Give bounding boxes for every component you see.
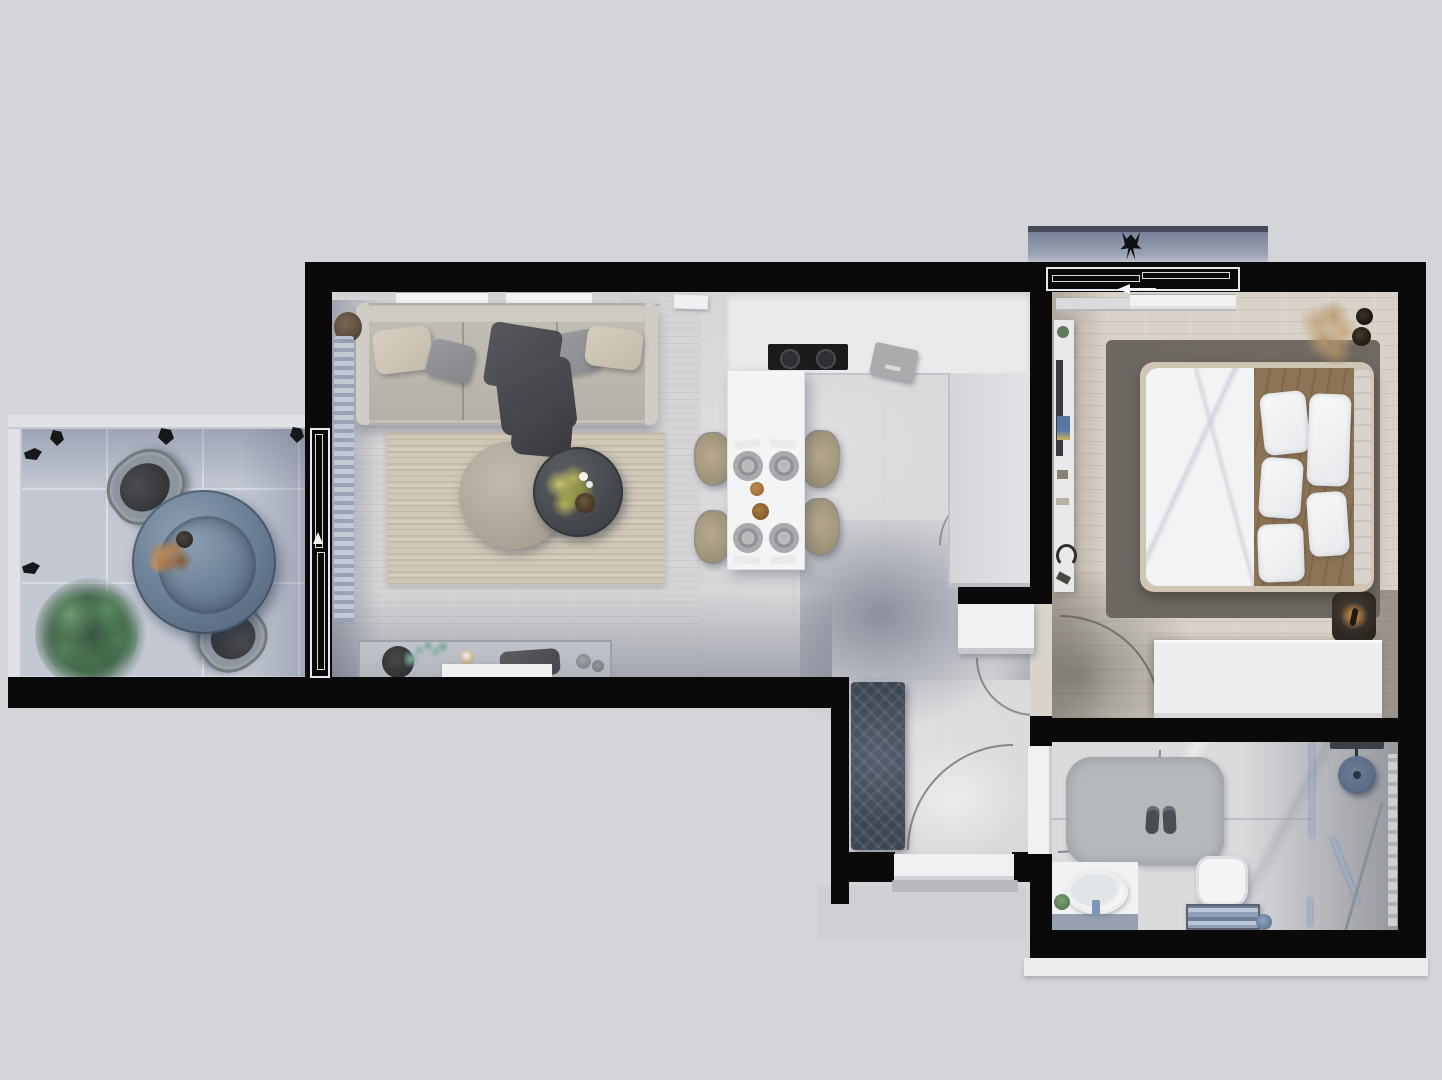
bread-decor: [752, 503, 769, 520]
slide-arrow-tail: [1130, 288, 1156, 290]
console-plant: [1057, 326, 1069, 338]
sofa-pillow: [584, 325, 644, 372]
bedroom-window-sill: [1130, 294, 1236, 311]
toilet: [1196, 856, 1248, 908]
rain-shower-head: [1338, 756, 1376, 794]
cooktop-burner: [780, 349, 800, 369]
bed-pillow: [1257, 523, 1305, 583]
bread-decor: [750, 482, 764, 496]
vanity-plant: [1054, 894, 1070, 910]
kitchen-cabinet-block: [948, 373, 1030, 588]
bedroom-window-sill: [1056, 298, 1132, 311]
wall-bottom-long: [8, 677, 849, 708]
console-artwork: [1057, 416, 1070, 440]
shower-glass-screen: [1310, 742, 1314, 838]
console-tv: [1056, 360, 1063, 456]
floor-plan-render: [0, 0, 1442, 1080]
towel-shelf: [1186, 904, 1260, 930]
sideboard-bowl: [460, 650, 474, 664]
bedroom-sliding-door-panel: [1142, 272, 1230, 279]
terrace-sliding-door-panel: [315, 434, 323, 548]
console-decor: [1056, 498, 1069, 505]
bed-pillow: [1306, 393, 1351, 486]
plant-pot: [1352, 327, 1371, 346]
entry-door-leaf: [894, 854, 1014, 880]
slide-arrow-icon: [313, 532, 323, 544]
headboard: [1354, 370, 1371, 584]
slipper: [1145, 806, 1160, 835]
decor-bowl: [575, 493, 595, 513]
console-headphones: [1056, 544, 1077, 567]
wall-bathroom-top: [1030, 718, 1398, 742]
candle: [579, 472, 588, 481]
entry-step: [892, 880, 1018, 892]
cutting-board-handle: [885, 364, 901, 371]
terrace-sliding-door-panel: [317, 552, 325, 670]
wall-bathroom-bottom: [1030, 930, 1426, 958]
place-setting: [769, 523, 799, 553]
terrace-plant-foliage: [42, 586, 138, 682]
terrace-sliding-door: [310, 428, 330, 678]
sofa-armrest-right: [645, 303, 658, 425]
dining-chair: [799, 497, 841, 556]
cooktop-burner: [816, 349, 836, 369]
bed-pillow: [1306, 491, 1350, 558]
place-setting: [733, 451, 763, 481]
faucet: [1092, 900, 1100, 916]
shower-glass-screen: [1308, 898, 1312, 926]
bathroom-door-leaf: [1028, 746, 1052, 854]
sideboard-dish: [592, 660, 604, 672]
sideboard-dish: [576, 654, 591, 669]
bed-duvet: [1146, 368, 1256, 586]
bedroom-sliding-door-panel: [1052, 275, 1140, 282]
bathroom-bin: [1256, 914, 1272, 930]
bath-mat: [1066, 757, 1224, 865]
wall-top: [305, 262, 1426, 292]
slipper: [1162, 806, 1176, 835]
open-door-leaf: [958, 604, 1034, 654]
shower-head-center: [1353, 771, 1361, 779]
place-setting: [733, 523, 763, 553]
bed-pillow: [1258, 457, 1304, 520]
wall-stub-kitchen: [958, 587, 1038, 604]
sofa-backrest: [368, 306, 646, 322]
wall-shelf: [674, 294, 708, 309]
candle: [586, 481, 593, 488]
terrace-table-cup: [176, 531, 193, 548]
slide-arrow-icon: [1118, 284, 1130, 294]
plant-pot: [1356, 308, 1373, 325]
wall-hall-left: [831, 677, 849, 904]
wardrobe: [1154, 640, 1382, 718]
wall-right: [1398, 292, 1426, 958]
curtain: [334, 336, 354, 622]
wall-bedroom-left-upper: [1030, 292, 1052, 604]
towel-radiator: [1388, 754, 1397, 926]
cooktop: [768, 344, 848, 370]
bed-pillow: [1259, 390, 1311, 456]
place-setting: [769, 451, 799, 481]
console-decor: [1057, 470, 1068, 479]
wall-hall-bottom-a: [849, 852, 895, 882]
hallway-rug: [851, 682, 905, 850]
